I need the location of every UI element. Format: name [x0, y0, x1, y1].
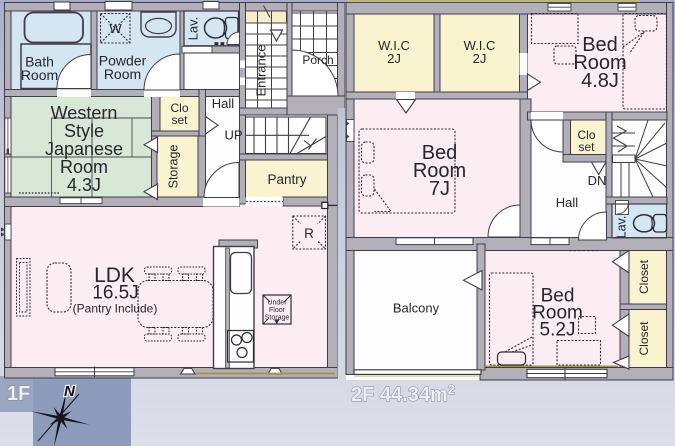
- svg-text:Hall: Hall: [556, 195, 579, 210]
- svg-text:set: set: [171, 113, 188, 127]
- svg-text:4.3J: 4.3J: [67, 175, 101, 195]
- svg-text:Hall: Hall: [212, 96, 235, 111]
- svg-text:Storage: Storage: [167, 145, 181, 189]
- svg-text:7J: 7J: [429, 178, 450, 200]
- svg-text:Storage: Storage: [265, 315, 290, 322]
- svg-text:W: W: [109, 21, 122, 36]
- svg-text:Closet: Closet: [637, 259, 651, 294]
- svg-text:Room: Room: [104, 66, 141, 82]
- svg-text:2F 44.34m2: 2F 44.34m2: [351, 382, 455, 406]
- svg-text:set: set: [578, 140, 595, 154]
- svg-text:Floor: Floor: [269, 307, 286, 314]
- svg-text:UP: UP: [224, 128, 242, 143]
- svg-text:Lav.: Lav.: [186, 17, 201, 41]
- svg-text:5.2J: 5.2J: [540, 320, 576, 341]
- svg-text:Closet: Closet: [637, 321, 651, 356]
- svg-text:1F: 1F: [7, 383, 30, 405]
- svg-text:Balcony: Balcony: [393, 301, 440, 316]
- svg-text:Porch: Porch: [302, 53, 333, 67]
- svg-text:Room: Room: [21, 67, 58, 83]
- svg-text:Style: Style: [64, 121, 104, 141]
- svg-text:N: N: [64, 383, 76, 400]
- svg-text:16.5J: 16.5J: [92, 283, 138, 304]
- svg-text:2J: 2J: [473, 51, 487, 66]
- svg-text:2J: 2J: [387, 51, 401, 66]
- svg-text:Entrance: Entrance: [254, 44, 269, 96]
- svg-text:DN: DN: [588, 173, 607, 188]
- svg-text:Lav.: Lav.: [615, 216, 629, 239]
- svg-text:4.8J: 4.8J: [581, 70, 619, 92]
- svg-text:Room: Room: [60, 157, 108, 177]
- svg-text:(Pantry Include): (Pantry Include): [73, 302, 158, 316]
- svg-text:R: R: [304, 226, 314, 241]
- svg-text:Western: Western: [51, 103, 118, 123]
- svg-text:Pantry: Pantry: [267, 172, 306, 187]
- svg-text:Japanese: Japanese: [45, 139, 123, 159]
- svg-text:Under: Under: [267, 300, 287, 307]
